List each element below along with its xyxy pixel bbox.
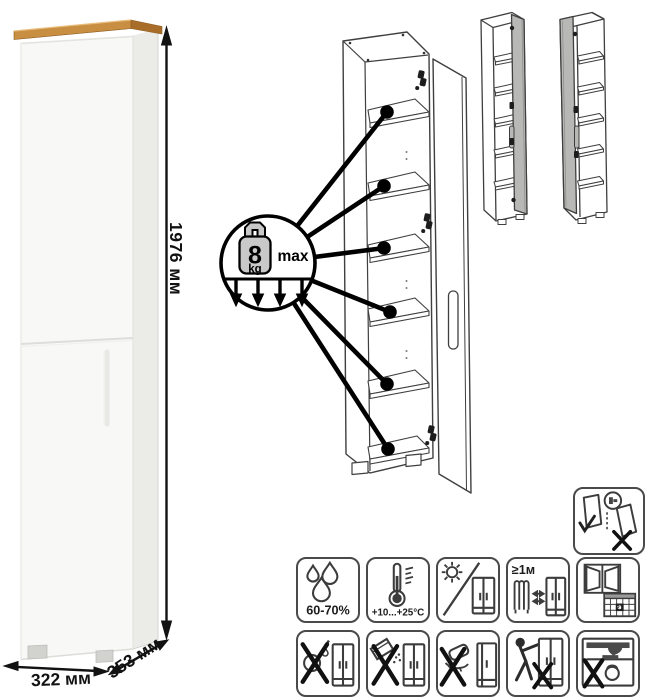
- person-glyph: [516, 638, 539, 680]
- assembly-diagram: 8 kg max: [200, 15, 480, 515]
- calendar-day: 21: [616, 604, 623, 611]
- gray-door-left: [560, 17, 577, 214]
- weight-unit: kg: [248, 264, 261, 276]
- open-door: [433, 59, 471, 493]
- humidity-label: 60-70%: [306, 603, 350, 617]
- height-arrow: [162, 27, 172, 639]
- cabinet-photo: [0, 0, 210, 700]
- ventilation-icon: 21: [576, 557, 640, 623]
- calendar-glyph: 21: [604, 594, 635, 617]
- width-dimension-label: 322 мм: [16, 667, 107, 692]
- kettlebell-glyph: [606, 666, 619, 680]
- foot-left: [352, 462, 368, 475]
- distance-label: ≥1м: [512, 563, 535, 577]
- radiator-glyph: [515, 581, 529, 613]
- no-overload-icon: [576, 630, 640, 697]
- door-variant-right-hinged: [478, 6, 550, 236]
- carcass-drawing: [343, 32, 471, 493]
- max-label: max: [277, 248, 308, 265]
- heat-distance-icon: ≥1м: [506, 557, 570, 623]
- no-dragging-icon: [506, 630, 570, 697]
- variant-handle: [575, 126, 580, 148]
- height-dimension-label: 1976 мм: [165, 222, 186, 295]
- no-abrasive-powder-icon: [366, 630, 430, 697]
- humidity-icon: 60-70%: [296, 557, 360, 623]
- no-scrubbing-icon: [436, 630, 500, 697]
- no-direct-sunlight-icon: [436, 557, 500, 623]
- door-handle: [449, 291, 459, 349]
- spacing-arrows: [533, 591, 543, 603]
- cabinet-glyph: [404, 644, 425, 685]
- shelf-load-callout: 8 kg max: [221, 216, 315, 310]
- product-sheet: 1976 мм 322 мм 353 мм: [0, 0, 648, 700]
- cabinet-glyph: [333, 644, 354, 685]
- open-door-band: [586, 642, 629, 648]
- foot-right: [406, 454, 421, 467]
- door-variant-left-hinged: [556, 6, 630, 236]
- cabinet-side-panel: [133, 29, 158, 649]
- secure-to-wall-icon: [573, 487, 645, 555]
- temperature-label: +10...+25°C: [372, 607, 425, 618]
- cabinet-glyph: [473, 578, 495, 614]
- no-wet-cleaning-icon: [296, 630, 360, 697]
- sun-icon: [442, 562, 463, 583]
- cabinet-door-front: [21, 36, 133, 660]
- window-glyph: [585, 565, 621, 593]
- cabinet-glyph: [477, 643, 496, 686]
- temperature-icon: +10...+25°C: [366, 557, 430, 623]
- cabinet-glyph: [546, 578, 565, 616]
- weight-icon: 8 kg: [240, 223, 271, 276]
